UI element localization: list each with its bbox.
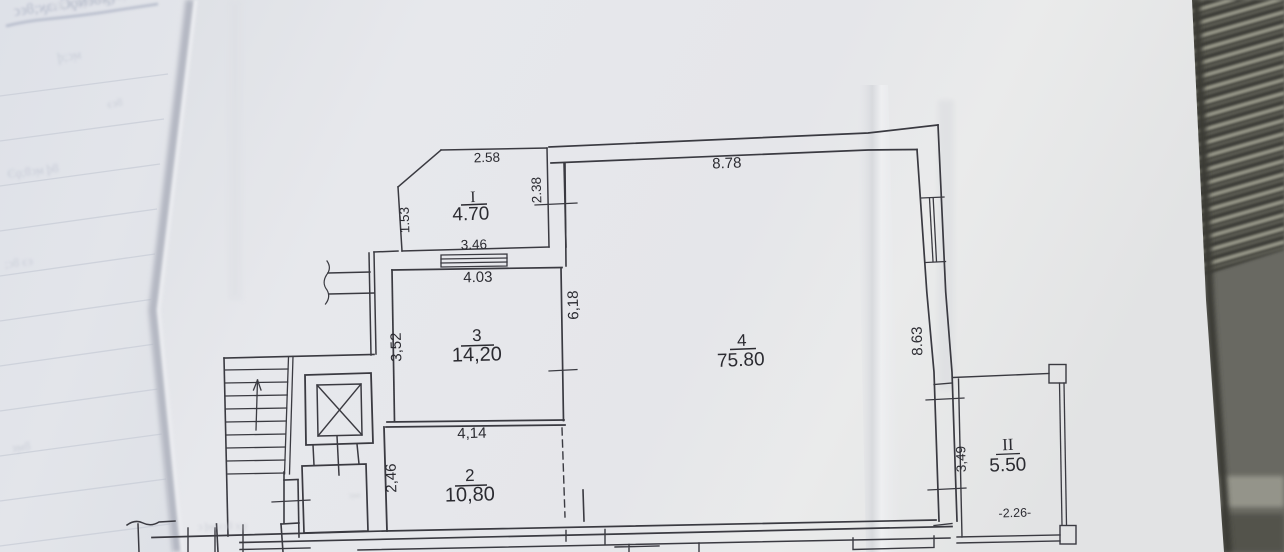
- svg-text:4,14: 4,14: [457, 425, 487, 443]
- svg-text:8.63: 8.63: [909, 326, 927, 356]
- svg-text:75.80: 75.80: [717, 349, 765, 372]
- svg-text:2,46: 2,46: [383, 463, 401, 493]
- svg-text:2.58: 2.58: [474, 150, 501, 166]
- svg-text:5.50: 5.50: [989, 454, 1027, 476]
- svg-text:II: II: [1002, 435, 1014, 454]
- svg-text:2.38: 2.38: [529, 177, 545, 204]
- svg-text:3,52: 3,52: [388, 332, 406, 362]
- svg-text:8.78: 8.78: [712, 154, 742, 172]
- svg-text:4: 4: [737, 331, 747, 350]
- svg-text:-2.26-: -2.26-: [998, 505, 1031, 520]
- svg-text:ͻ ϸϻ ͼͽϐ ϶;ϙ: ͻ ϸϻ ͼͽϐ ϶;ϙ: [198, 521, 247, 533]
- svg-text:6,18: 6,18: [565, 290, 583, 320]
- svg-text:3,49: 3,49: [953, 446, 969, 473]
- svg-text:2: 2: [465, 466, 475, 485]
- svg-text:4.03: 4.03: [463, 269, 493, 287]
- svg-text:14,20: 14,20: [452, 343, 503, 366]
- svg-text:10,80: 10,80: [445, 483, 496, 506]
- svg-text:ͻϻͼ: ͻϻͼ: [348, 490, 362, 500]
- svg-text:ͽϻϐ: ͽϻϐ: [11, 439, 32, 455]
- svg-text:3.46: 3.46: [461, 237, 488, 253]
- svg-text:1.53: 1.53: [397, 207, 413, 234]
- svg-text:4.70: 4.70: [452, 204, 490, 226]
- svg-text:3: 3: [472, 326, 482, 345]
